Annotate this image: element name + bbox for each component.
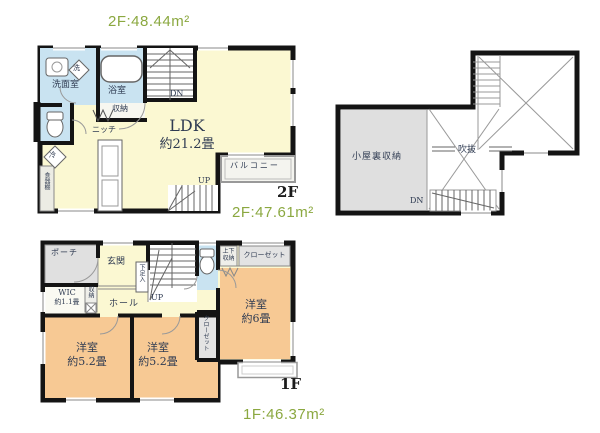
floor1-mark: 1F bbox=[280, 375, 301, 393]
cupboard-label: 食器棚 bbox=[43, 172, 49, 190]
wic-label: WIC 約1.1畳 bbox=[46, 288, 88, 307]
washroom-label: 洗面室 bbox=[52, 80, 79, 91]
fridge-label: 冷 bbox=[49, 151, 56, 159]
stairs-dn-2f-label: DN bbox=[170, 89, 183, 99]
bathroom-label: 浴室 bbox=[108, 86, 126, 97]
bedroom52-mid-size: 約5.2畳 bbox=[123, 355, 193, 369]
ldk-name: LDK bbox=[147, 116, 227, 137]
ldk-size: 約21.2畳 bbox=[147, 137, 227, 154]
area-label-2f-top: 2F:48.44m² bbox=[108, 13, 190, 30]
upper-storage-label: 上下収納 bbox=[221, 248, 236, 262]
closet-label: クローゼット bbox=[240, 251, 289, 259]
wic-name: WIC bbox=[46, 288, 88, 298]
floor2-mark: 2F bbox=[277, 183, 298, 201]
attic-plan bbox=[338, 53, 577, 216]
stairs-up-2f-label: UP bbox=[198, 176, 210, 186]
area-label-1f: 1F:46.37m² bbox=[243, 406, 325, 423]
bedroom52-left-size: 約5.2畳 bbox=[52, 355, 122, 369]
ldk-label: LDK 約21.2畳 bbox=[147, 116, 227, 154]
bedroom52-left-name: 洋室 bbox=[52, 341, 122, 355]
hall-label: ホール bbox=[109, 299, 139, 310]
void-label: 吹抜 bbox=[458, 145, 476, 156]
storage-2f-label: 収納 bbox=[112, 104, 128, 114]
porch-label: ポーチ bbox=[51, 248, 78, 258]
stairs-dn-attic-label: DN bbox=[410, 196, 423, 206]
bedroom52-mid-label: 洋室 約5.2畳 bbox=[123, 341, 193, 370]
storage-1f-label: 収納 bbox=[87, 286, 93, 298]
bedroom52-left-label: 洋室 約5.2畳 bbox=[52, 341, 122, 370]
floor-plan-page: 2F:48.44m² 2F:47.61m² 1F:46.37m² 2F 1F 洗… bbox=[0, 0, 600, 433]
wic-size: 約1.1畳 bbox=[46, 298, 88, 307]
closet-vertical-label: クローゼット bbox=[202, 315, 208, 351]
stairs-up-1f-label: UP bbox=[151, 293, 163, 303]
bedroom6-name: 洋室 bbox=[226, 298, 286, 312]
washer-label: 洗 bbox=[73, 64, 80, 72]
area-label-2f: 2F:47.61m² bbox=[232, 204, 314, 221]
shoe-cabinet-label: 下足入 bbox=[138, 264, 144, 282]
bedroom6-size: 約6畳 bbox=[226, 312, 286, 326]
bedroom6-label: 洋室 約6畳 bbox=[226, 298, 286, 327]
entrance-label: 玄関 bbox=[107, 257, 125, 268]
attic-storage-label: 小屋裏収納 bbox=[352, 152, 402, 163]
niche-label: ニッチ bbox=[92, 125, 116, 135]
balcony-label: バルコニー bbox=[230, 161, 280, 171]
bedroom52-mid-name: 洋室 bbox=[123, 341, 193, 355]
